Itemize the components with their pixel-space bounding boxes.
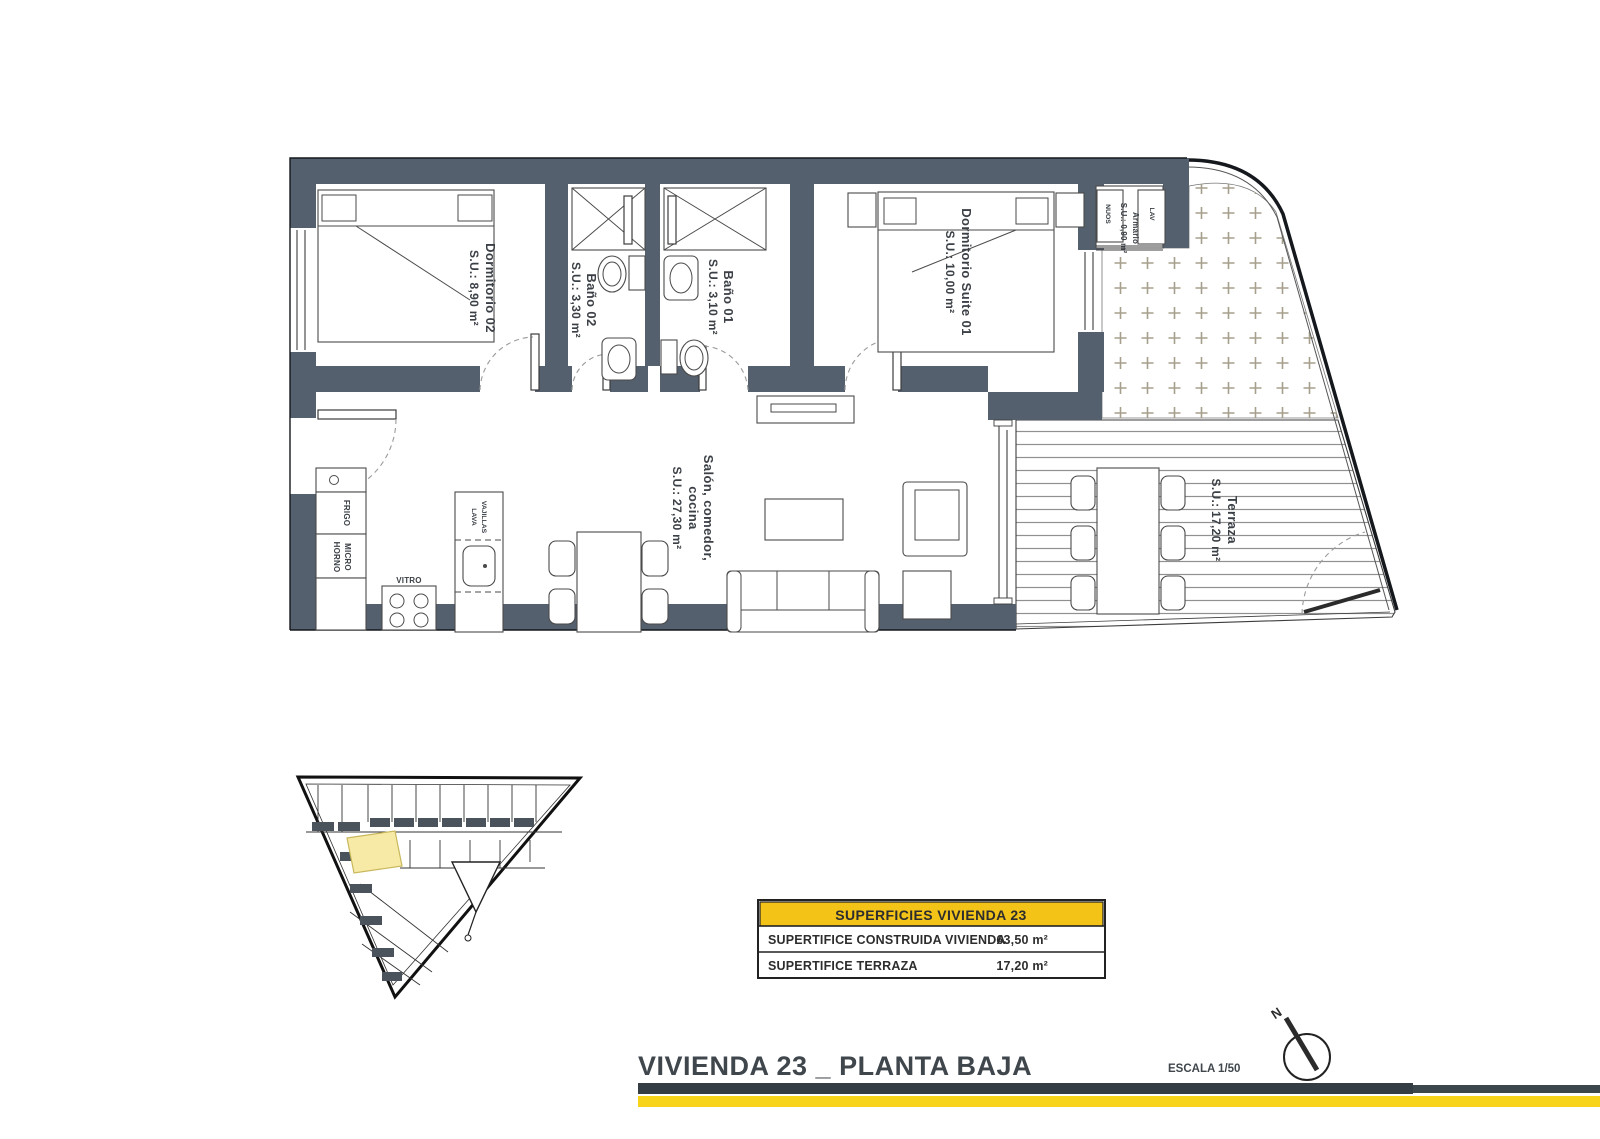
scale-label: ESCALA 1/50 — [1168, 1063, 1240, 1075]
room-label-bano-02: Baño 02 — [584, 273, 599, 326]
toilet — [661, 340, 677, 374]
room-label-dormitorio-02: Dormitorio 02 — [483, 243, 498, 333]
footer-yellow-bar — [638, 1096, 1600, 1107]
table-row-terrace-value: 17,20 m² — [996, 959, 1048, 973]
sheet-title: VIVIENDA 23 _ PLANTA BAJA — [638, 1051, 1032, 1081]
north-arrow-icon: N — [1268, 1004, 1330, 1080]
footer-bars — [638, 1083, 1600, 1107]
oven-label-line1: HORNO — [332, 542, 341, 573]
washer-label: LAV — [1148, 207, 1155, 221]
armchair — [903, 482, 967, 556]
drawing-sheet: Dormitorio 02 S.U.: 8,90 m² Baño 02 S.U.… — [0, 0, 1600, 1139]
toilet — [629, 256, 645, 290]
room-area-armario: S.U.: 0,90 m² — [1119, 203, 1128, 254]
fridge-label: FRIGO — [342, 500, 351, 526]
table-row-built-label: SUPERTIFICE CONSTRUIDA VIVIENDA — [768, 933, 1006, 947]
title-block: VIVIENDA 23 _ PLANTA BAJA ESCALA 1/50 N — [638, 1004, 1330, 1081]
north-label: N — [1268, 1004, 1284, 1022]
living-furniture — [549, 396, 967, 632]
bedroom2-door-leaf — [531, 334, 539, 390]
table-row-terrace-label: SUPERTIFICE TERRAZA — [768, 959, 918, 973]
entry-door-leaf — [318, 410, 396, 419]
coffee-table — [765, 499, 843, 540]
terrace-furniture — [1071, 468, 1185, 614]
dishwasher-label-line1: LAVA — [470, 508, 477, 526]
water-heater-label: NUOS — [1104, 204, 1111, 224]
sofa — [727, 571, 879, 632]
hob-unit — [382, 586, 436, 630]
hob-label: VITRO — [396, 576, 421, 585]
island-sink — [463, 546, 495, 586]
room-area-bano-02: S.U.: 3,30 m² — [569, 262, 583, 338]
dining-table — [577, 532, 641, 632]
room-label-bano-01: Baño 01 — [721, 270, 736, 323]
side-table — [903, 571, 951, 619]
room-label-terraza: Terraza — [1225, 496, 1240, 544]
room-label-salon-line1: Salón, comedor, — [701, 455, 716, 561]
table-row-built-value: 63,50 m² — [996, 933, 1048, 947]
terrace-table — [1097, 468, 1159, 614]
summary-table: SUPERFICIES VIVIENDA 23 SUPERTIFICE CONS… — [758, 900, 1105, 978]
room-label-armario: Armario — [1131, 212, 1140, 244]
room-area-suite-01: S.U.: 10,00 m² — [943, 231, 957, 314]
room-area-terraza: S.U.: 17,20 m² — [1209, 479, 1223, 562]
tv-cabinet — [757, 396, 854, 423]
site-key-plan — [298, 777, 580, 997]
site-highlighted-unit — [347, 831, 402, 873]
table-header: SUPERFICIES VIVIENDA 23 — [835, 907, 1027, 923]
floor-plan: Dormitorio 02 S.U.: 8,90 m² Baño 02 S.U.… — [290, 158, 1397, 632]
room-label-salon-line2: cocina — [686, 486, 701, 530]
oven-label-line2: MICRO — [343, 543, 352, 571]
room-area-dormitorio-02: S.U.: 8,90 m² — [467, 250, 481, 326]
sink — [602, 338, 636, 380]
room-area-salon: S.U.: 27,30 m² — [670, 467, 684, 550]
fridge-unit — [316, 492, 366, 534]
room-area-bano-01: S.U.: 3,10 m² — [706, 259, 720, 335]
floor-plan-drawing: Dormitorio 02 S.U.: 8,90 m² Baño 02 S.U.… — [0, 0, 1600, 1139]
room-label-suite-01: Dormitorio Suite 01 — [959, 208, 974, 336]
dishwasher-label-line2: VAJILLAS — [480, 501, 487, 534]
